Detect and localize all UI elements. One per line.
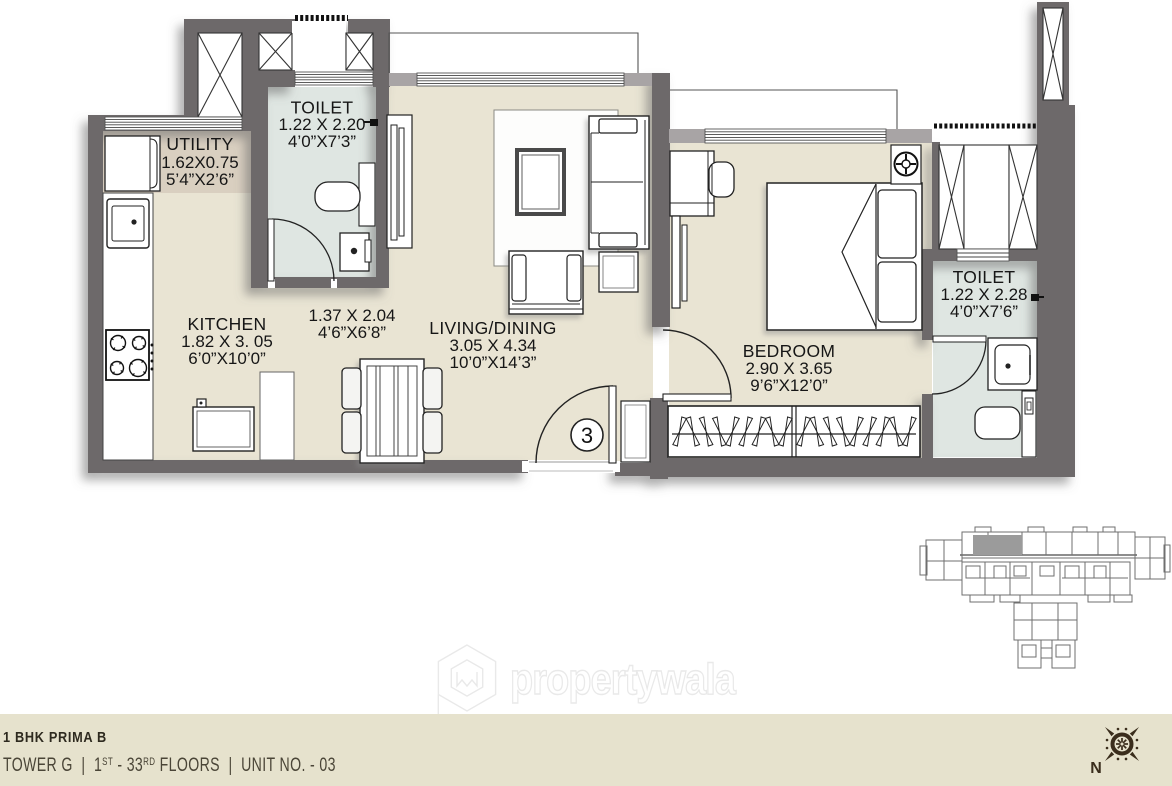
svg-text:3: 3 (581, 423, 593, 448)
svg-text:5’4”X2’6”: 5’4”X2’6” (166, 170, 234, 189)
svg-text:TOILET: TOILET (953, 267, 1016, 287)
svg-text:N: N (1090, 760, 1102, 777)
svg-text:propertywala: propertywala (510, 654, 737, 703)
svg-text:4’6”X6’8”: 4’6”X6’8” (318, 323, 386, 342)
svg-text:TOWER G | 1ST - 33RD FLOORS: TOWER G | 1ST - 33RD FLOORS | UNIT NO. -… (3, 754, 336, 776)
svg-text:9’6”X12’0”: 9’6”X12’0” (750, 376, 828, 395)
svg-text:6’0”X10’0”: 6’0”X10’0” (188, 349, 266, 368)
svg-text:10’0”X14’3”: 10’0”X14’3” (450, 353, 537, 372)
svg-text:UTILITY: UTILITY (166, 134, 233, 154)
svg-text:LIVING/DINING: LIVING/DINING (429, 318, 556, 338)
svg-text:4’0”X7’6”: 4’0”X7’6” (950, 302, 1018, 321)
svg-text:4’0”X7’3”: 4’0”X7’3” (288, 132, 356, 151)
svg-text:KITCHEN: KITCHEN (188, 314, 267, 334)
svg-text:BEDROOM: BEDROOM (743, 341, 836, 361)
svg-text:1 BHK PRIMA B: 1 BHK PRIMA B (3, 728, 107, 745)
